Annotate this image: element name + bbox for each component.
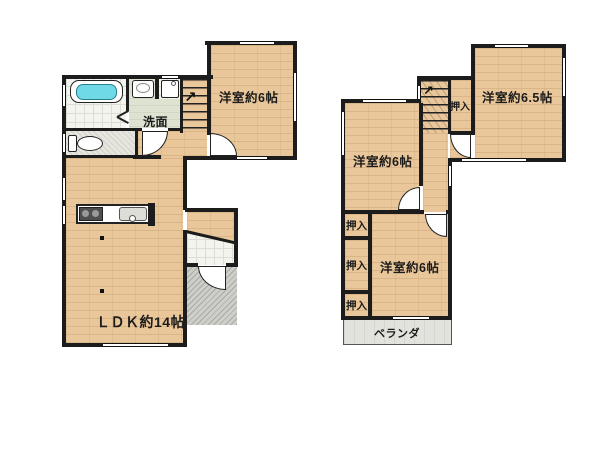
wall bbox=[448, 212, 452, 320]
wall bbox=[186, 263, 198, 267]
room-label-western-f1: 洋室約6帖 bbox=[219, 87, 278, 106]
room-label-western-65: 洋室約6.5帖 bbox=[482, 87, 553, 106]
floorplan-canvas: ↗ 洋室約6帖 洗面 ＬＤＫ約14帖 ↗ 洋室約6.5帖 洋室約6帖 洋 bbox=[0, 0, 600, 449]
wall bbox=[180, 77, 183, 133]
wall bbox=[419, 103, 423, 186]
stove-burner bbox=[92, 210, 99, 217]
closet-label-top: 押入 bbox=[346, 218, 367, 233]
window bbox=[462, 158, 526, 162]
wall bbox=[341, 290, 372, 294]
wall bbox=[135, 131, 138, 155]
wall bbox=[62, 155, 138, 158]
room-label-western-left: 洋室約6帖 bbox=[353, 151, 412, 170]
window bbox=[237, 156, 267, 160]
window bbox=[103, 343, 168, 347]
wall bbox=[234, 208, 238, 267]
window bbox=[62, 206, 66, 224]
toilet-bowl bbox=[77, 136, 103, 151]
window bbox=[393, 316, 429, 320]
toilet-tank bbox=[68, 135, 77, 152]
window bbox=[562, 58, 566, 96]
f2-hall-floor bbox=[423, 133, 448, 212]
wall bbox=[155, 77, 159, 99]
wall bbox=[126, 77, 129, 111]
f1-staircase bbox=[183, 79, 207, 133]
window bbox=[62, 134, 66, 152]
wall bbox=[185, 208, 238, 212]
wall bbox=[368, 214, 372, 316]
wall bbox=[226, 263, 238, 267]
window bbox=[363, 99, 406, 103]
window bbox=[448, 166, 452, 186]
wall bbox=[183, 156, 187, 210]
wall bbox=[62, 75, 213, 79]
veranda-label: ベランダ bbox=[374, 325, 420, 341]
wall bbox=[168, 128, 183, 131]
wall bbox=[133, 155, 161, 159]
window bbox=[62, 85, 66, 106]
wall bbox=[207, 41, 211, 135]
stairs-up-arrow: ↗ bbox=[423, 84, 434, 97]
wash-basin-bowl bbox=[136, 83, 150, 93]
wall bbox=[341, 210, 424, 214]
wall bbox=[148, 203, 155, 226]
ceiling-light-dot bbox=[100, 289, 104, 293]
washing-machine bbox=[161, 80, 179, 98]
closet-label-stairs: 押入 bbox=[450, 98, 470, 113]
bathtub-water bbox=[76, 84, 117, 100]
window bbox=[240, 41, 274, 45]
room-label-ldk: ＬＤＫ約14帖 bbox=[96, 312, 185, 332]
wall bbox=[471, 44, 475, 135]
window bbox=[62, 178, 66, 200]
ceiling-light-dot bbox=[100, 236, 104, 240]
wall bbox=[341, 236, 372, 240]
wall bbox=[417, 76, 475, 80]
room-label-western-bottom: 洋室約6帖 bbox=[380, 257, 439, 276]
washing-machine-dial bbox=[171, 81, 176, 86]
stove-burner bbox=[82, 210, 89, 217]
window bbox=[162, 75, 178, 79]
window bbox=[293, 73, 297, 121]
room-label-washroom: 洗面 bbox=[143, 113, 168, 130]
closet-label-middle: 押入 bbox=[346, 258, 367, 273]
wall bbox=[62, 128, 142, 131]
closet-label-bottom: 押入 bbox=[346, 298, 367, 313]
window bbox=[495, 44, 528, 48]
window bbox=[341, 112, 345, 155]
wall bbox=[341, 216, 345, 320]
sink-faucet bbox=[129, 215, 136, 222]
stairs-up-arrow: ↗ bbox=[184, 90, 197, 105]
